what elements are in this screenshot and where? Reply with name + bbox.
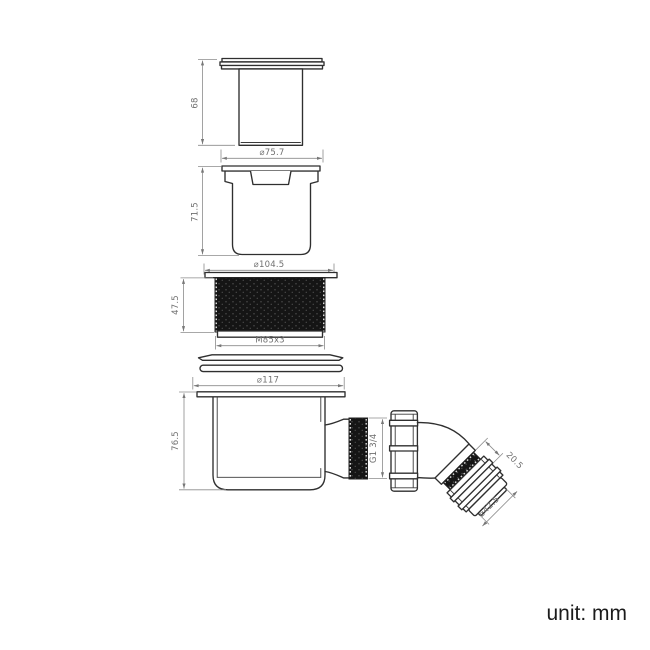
- dim-label-ring-thread: M85x3: [255, 336, 285, 346]
- view-washers: [199, 355, 343, 372]
- outlet-thread: [349, 418, 368, 479]
- dim-cap-height: 68: [191, 60, 236, 146]
- dim-label-ring-height: 47.5: [171, 295, 181, 315]
- unit-note: unit: mm: [546, 602, 627, 626]
- dim-flange-diameter: ⌀117: [193, 375, 344, 389]
- view-trap-body: [197, 392, 368, 490]
- dim-label-outlet-thread: G1 3/4: [369, 434, 379, 464]
- washer-bevelled: [199, 355, 343, 361]
- dim-label-trap-height: 76.5: [171, 431, 181, 451]
- dim-label-cap-height: 68: [191, 97, 201, 108]
- dim-label-elbow-nut-length: 20.5: [504, 450, 525, 471]
- drawing-page: 68 ⌀75.7 71.5 ⌀104.5 47.5: [0, 0, 650, 650]
- elbow-curve-inner: [417, 478, 435, 479]
- dim-ring-height: 47.5: [171, 278, 214, 333]
- dim-label-insert-diameter: ⌀104.5: [254, 260, 285, 270]
- view-threaded-ring: [205, 273, 337, 338]
- elbow-socket: 20.5 ⌀42.5: [432, 426, 536, 530]
- dim-label-insert-height: 71.5: [191, 202, 201, 222]
- dim-label-flange-diameter: ⌀117: [257, 375, 279, 385]
- view-top-cap: [220, 59, 324, 146]
- dim-cap-diameter: ⌀75.7: [221, 148, 323, 162]
- view-insert-body: [222, 166, 320, 255]
- dim-outlet-thread: G1 3/4: [369, 418, 388, 479]
- dim-label-cap-diameter: ⌀75.7: [259, 148, 284, 158]
- washer-flat: [200, 365, 343, 371]
- outlet-nut: [390, 411, 418, 491]
- elbow-curve-outer: [417, 423, 469, 444]
- drawing-canvas: 68 ⌀75.7 71.5 ⌀104.5 47.5: [0, 0, 650, 650]
